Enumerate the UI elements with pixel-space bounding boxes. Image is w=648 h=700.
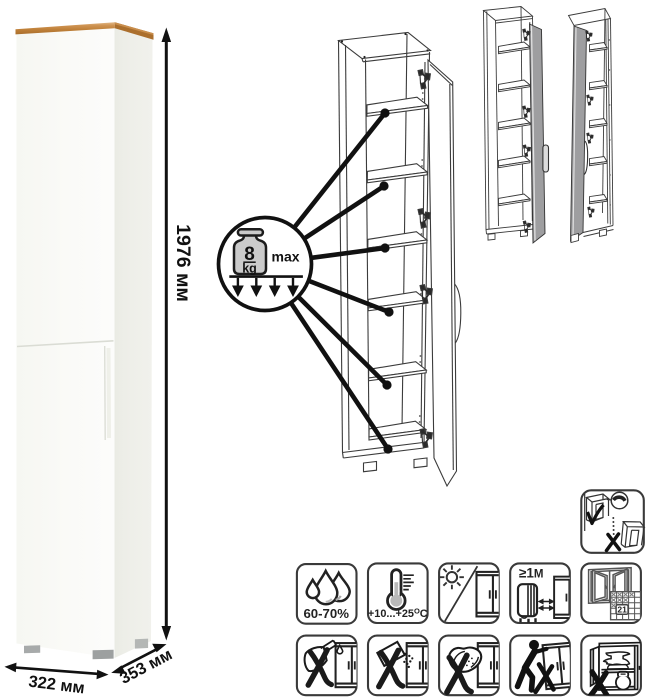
- svg-text:60-70%: 60-70%: [303, 606, 349, 621]
- svg-text:kg: kg: [242, 261, 257, 275]
- svg-text:322 мм: 322 мм: [27, 673, 85, 698]
- svg-text:≥1M: ≥1M: [519, 566, 544, 581]
- svg-text:max: max: [272, 249, 300, 265]
- svg-text:+10...+25OC: +10...+25OC: [368, 607, 428, 620]
- svg-text:21: 21: [617, 605, 627, 615]
- svg-text:1976 мм: 1976 мм: [172, 224, 194, 302]
